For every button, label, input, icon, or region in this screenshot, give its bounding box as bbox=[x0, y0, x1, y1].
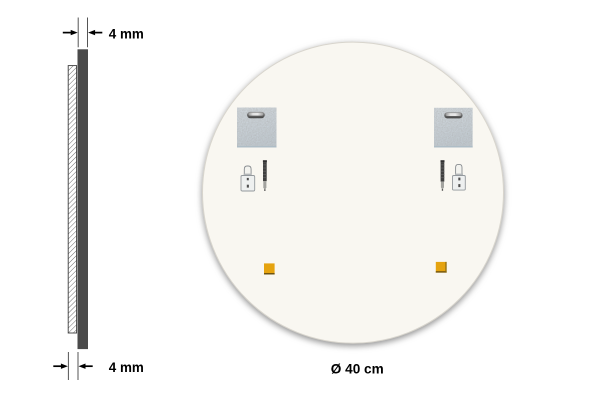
svg-text:4 mm: 4 mm bbox=[109, 27, 144, 42]
svg-text:Ø 40 cm: Ø 40 cm bbox=[331, 361, 384, 376]
svg-text:4 mm: 4 mm bbox=[109, 360, 144, 375]
